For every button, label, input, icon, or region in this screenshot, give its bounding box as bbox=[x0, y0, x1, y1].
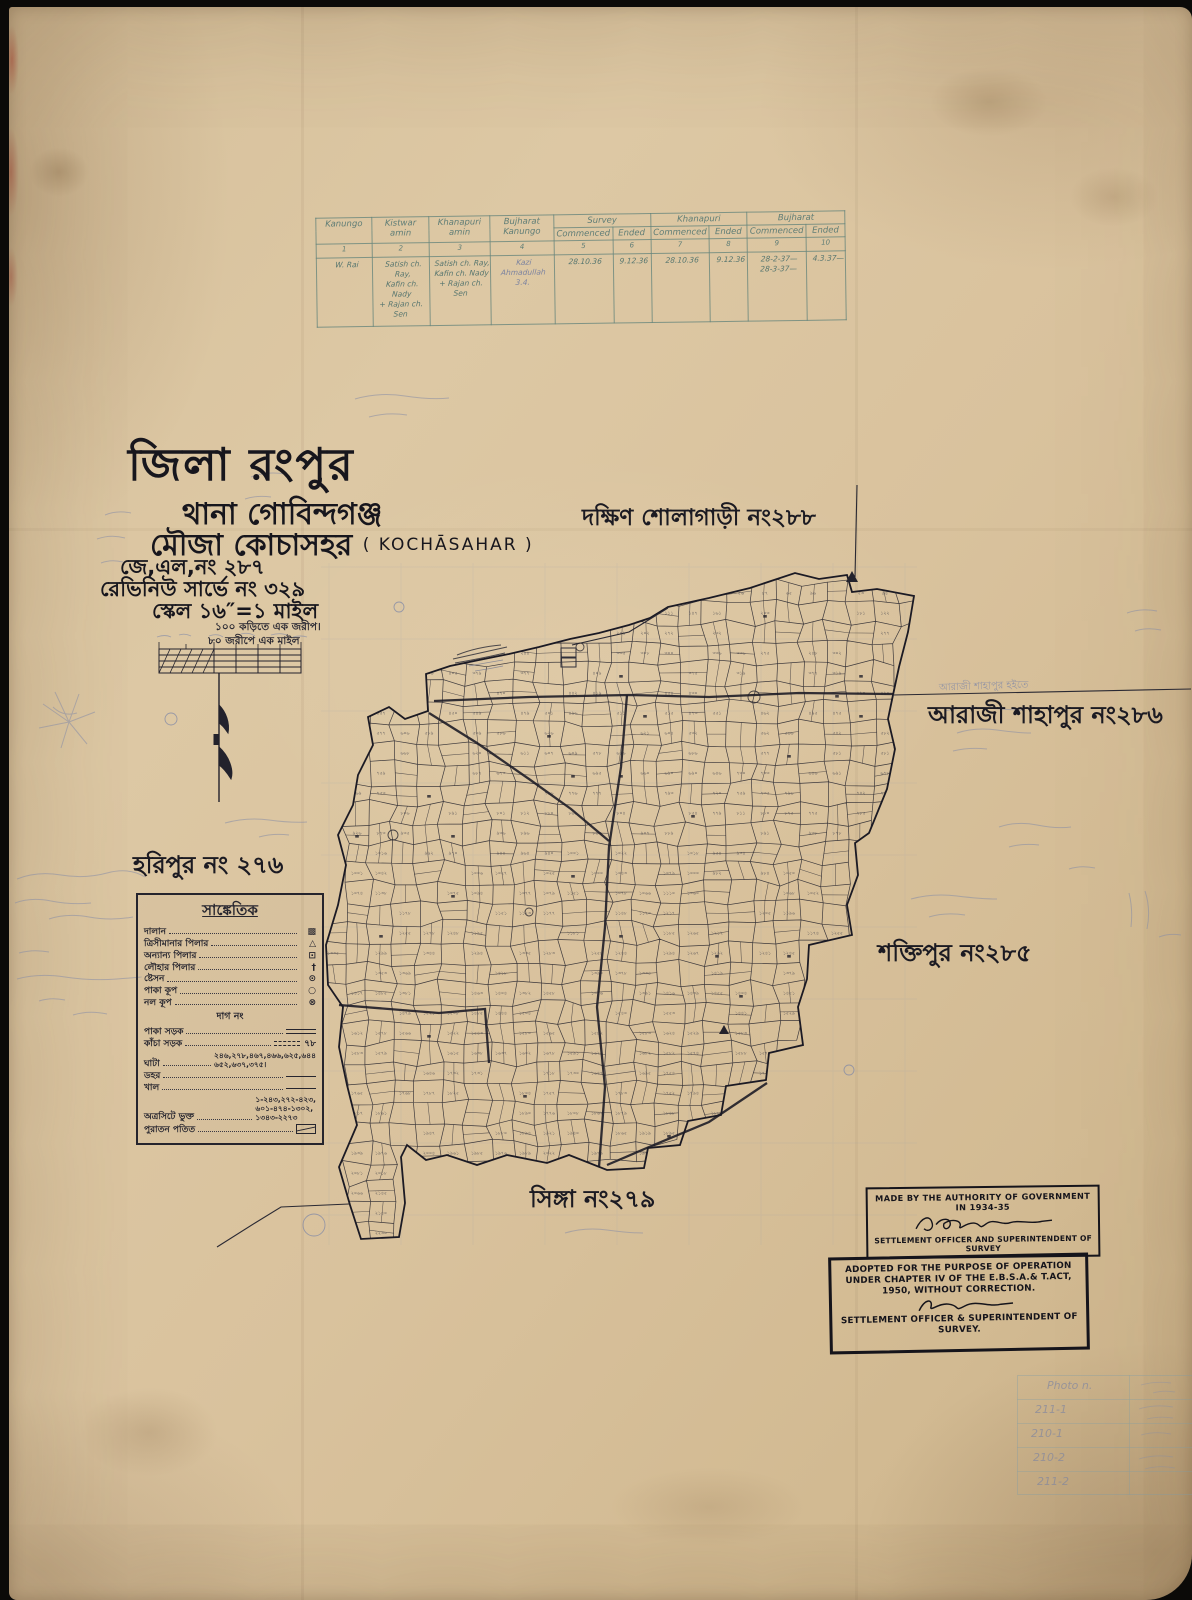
svg-text:৮১১: ৮১১ bbox=[737, 812, 746, 817]
svg-text:১৭৬৮: ১৭৬৮ bbox=[399, 1092, 412, 1097]
svg-text:১১৮১: ১১৮১ bbox=[567, 932, 579, 937]
svg-text:১২১২: ১২১২ bbox=[711, 932, 723, 937]
svg-text:৬৯১: ৬৯১ bbox=[833, 772, 842, 777]
svg-text:৬০৭: ৬০৭ bbox=[545, 752, 554, 757]
svg-text:১১৫১: ১১৫১ bbox=[567, 892, 579, 897]
svg-text:১০৬৮: ১০৬৮ bbox=[783, 892, 796, 897]
svg-text:১৩৩৫: ১৩৩৫ bbox=[519, 952, 531, 957]
legend-subtitle: দাগ নং bbox=[144, 1010, 316, 1025]
other-pillar-symbol: ⊡ bbox=[300, 951, 316, 961]
svg-text:৭৪২: ৭৪২ bbox=[857, 792, 866, 797]
svg-text:১০২৭: ১০২৭ bbox=[495, 872, 507, 877]
sub-header: Ended bbox=[709, 225, 747, 239]
svg-text:১২৯৪: ১২৯৪ bbox=[663, 952, 675, 957]
svg-text:১০০৬: ১০০৬ bbox=[471, 872, 484, 877]
svg-text:৮৯৬: ৮৯৬ bbox=[521, 832, 531, 837]
masonry-well-symbol: ○ bbox=[300, 986, 316, 996]
svg-text:৮৭৮: ৮৭৮ bbox=[833, 832, 843, 837]
svg-text:৬৪৬: ৬৪৬ bbox=[713, 772, 723, 777]
svg-text:১৮২৫: ১৮২৫ bbox=[447, 1092, 459, 1097]
svg-text:৭৮৫: ৭৮৫ bbox=[857, 812, 866, 817]
svg-text:১০৭৮: ১০৭৮ bbox=[615, 892, 628, 897]
svg-text:১৯৩৯: ১৯৩৯ bbox=[351, 1152, 363, 1157]
svg-text:৬৮৭: ৬৮৭ bbox=[473, 772, 482, 777]
entry-survey-ended: 9.12.36 bbox=[611, 253, 653, 323]
entry-khanapuri-commenced: 28.10.36 bbox=[649, 253, 711, 323]
svg-text:১১২০: ১১২০ bbox=[639, 912, 651, 917]
sub-header: Commenced bbox=[651, 226, 710, 240]
svg-text:১৬৭৮: ১৬৭৮ bbox=[543, 1052, 556, 1057]
svg-text:১২৯৪: ১২৯৪ bbox=[471, 952, 483, 957]
unpaved-road-number: ৭৮ bbox=[300, 1039, 316, 1049]
svg-text:১৭৫৭: ১৭৫৭ bbox=[543, 1092, 555, 1097]
survey-grid bbox=[321, 563, 917, 1245]
svg-text:১০০০: ১০০০ bbox=[687, 872, 699, 877]
svg-text:১৩৮২: ১৩৮২ bbox=[519, 992, 531, 997]
svg-text:৫৭৭: ৫৭৭ bbox=[761, 752, 770, 757]
svg-text:১৫০৪: ১৫০৪ bbox=[519, 1012, 531, 1017]
svg-text:২৩২: ২৩২ bbox=[713, 632, 722, 637]
svg-text:১৬৯৫: ১৬৯৫ bbox=[639, 1072, 651, 1077]
svg-text:১৮০৪: ১৮০৪ bbox=[519, 1092, 531, 1097]
svg-text:২৪৮: ২৪৮ bbox=[809, 652, 819, 657]
sub-header: Ended bbox=[612, 227, 650, 241]
svg-text:৪৯৬: ৪৯৬ bbox=[569, 712, 579, 717]
svg-text:১৫৯১: ১৫৯১ bbox=[567, 1052, 579, 1057]
svg-text:৫৫১: ৫৫১ bbox=[713, 712, 722, 717]
svg-text:১৭৮৩: ১৭৮৩ bbox=[615, 1092, 628, 1097]
photo-number: 211-1 bbox=[1035, 1403, 1067, 1416]
svg-text:১৪৫৫: ১৪৫৫ bbox=[711, 992, 723, 997]
legend-label: লৌহার পিলার bbox=[144, 963, 195, 973]
trijunction-pillar-symbol: △ bbox=[300, 939, 316, 949]
svg-text:১৭৩০: ১৭৩০ bbox=[567, 1072, 579, 1077]
svg-text:১৬১: ১৬১ bbox=[713, 612, 722, 617]
svg-text:৭৩৩: ৭৩৩ bbox=[761, 772, 771, 777]
col-number: 5 bbox=[554, 240, 613, 255]
svg-text:১১৪৮: ১১৪৮ bbox=[615, 912, 628, 917]
svg-text:১৭১৮: ১৭১৮ bbox=[543, 1072, 556, 1077]
svg-text:৩৭৭: ৩৭৭ bbox=[809, 672, 818, 677]
svg-text:১৮৮০: ১৮৮০ bbox=[495, 1132, 507, 1137]
svg-text:৬৯০: ৬৯০ bbox=[665, 772, 674, 777]
svg-text:৩৩৬: ৩৩৬ bbox=[737, 652, 747, 657]
svg-text:৮৭৩: ৮৭৩ bbox=[377, 832, 387, 837]
svg-text:১৫৮৩: ১৫৮৩ bbox=[639, 1032, 652, 1037]
svg-text:১৫৭৯: ১৫৭৯ bbox=[375, 1052, 387, 1057]
svg-text:১০৬৬: ১০৬৬ bbox=[639, 892, 652, 897]
svg-text:৬৬৮: ৬৬৮ bbox=[401, 752, 411, 757]
svg-text:১২২: ১২২ bbox=[881, 612, 890, 617]
entry-bujharat-kanungo: Kazi Ahmadullah 3.4. bbox=[489, 255, 557, 325]
neighbour-label-south: সিঙ্গা নং২৭৯ bbox=[530, 1181, 655, 1221]
svg-text:৬৭৩: ৬৭৩ bbox=[497, 772, 507, 777]
svg-text:১৫৮০: ১৫৮০ bbox=[519, 1032, 531, 1037]
svg-text:৯৭০: ৯৭০ bbox=[449, 852, 458, 857]
col-number: 8 bbox=[709, 238, 747, 253]
svg-text:১২৫৫: ১২৫৫ bbox=[831, 932, 843, 937]
svg-text:১৪১৮: ১৪১৮ bbox=[495, 972, 508, 977]
svg-text:১২৬৫: ১২৬৫ bbox=[687, 932, 699, 937]
svg-text:৩০০: ৩০০ bbox=[665, 652, 674, 657]
svg-text:৫৬২: ৫৬২ bbox=[761, 732, 770, 737]
legend-label: পুরাতন পতিত bbox=[144, 1125, 195, 1135]
svg-text:৬১১: ৬১১ bbox=[521, 752, 530, 757]
svg-text:১৯৪০: ১৯৪০ bbox=[567, 1132, 579, 1137]
col-number: 2 bbox=[372, 243, 429, 258]
svg-text:১৫২৯: ১৫২৯ bbox=[687, 1032, 699, 1037]
svg-text:১০০১: ১০০১ bbox=[351, 872, 363, 877]
svg-text:১৪৫১: ১৪৫১ bbox=[783, 992, 795, 997]
legend-title: সাঙ্কেতিক bbox=[144, 899, 316, 924]
svg-text:১১৯৫: ১১৯৫ bbox=[471, 932, 483, 937]
svg-text:২০৬৬: ২০৬৬ bbox=[351, 1192, 364, 1197]
svg-text:৮৭: ৮৭ bbox=[762, 592, 768, 597]
svg-text:১১৫১: ১১৫১ bbox=[495, 912, 507, 917]
svg-text:১৪৭৯: ১৪৭৯ bbox=[399, 1012, 411, 1017]
legend-label: ষ্টেসন bbox=[144, 974, 164, 984]
svg-text:১৫৬৫: ১৫৬৫ bbox=[543, 1032, 555, 1037]
svg-text:১৩৩৪: ১৩৩৪ bbox=[639, 972, 651, 977]
svg-text:১৭৩১: ১৭৩১ bbox=[471, 1072, 483, 1077]
svg-text:৪৫০: ৪৫০ bbox=[449, 712, 458, 717]
svg-text:৫৮১: ৫৮১ bbox=[833, 752, 842, 757]
photo-number: 210-2 bbox=[1033, 1451, 1065, 1464]
svg-text:৫৭৮: ৫৭৮ bbox=[593, 752, 603, 757]
col-header: Bujharat Kanungo bbox=[490, 215, 554, 242]
svg-text:১২৫৫: ১২৫৫ bbox=[399, 932, 411, 937]
svg-text:১১৭৭: ১১৭৭ bbox=[543, 912, 555, 917]
svg-text:১৭৯৪: ১৭৯৪ bbox=[687, 1092, 699, 1097]
svg-text:৯৩৮: ৯৩৮ bbox=[809, 832, 819, 837]
svg-text:৬৮৬: ৬৮৬ bbox=[689, 752, 699, 757]
survey-progress-table: Kanungo Kistwar amin Khanapuri amin Bujh… bbox=[315, 210, 846, 327]
svg-text:১১৭৪: ১১৭৪ bbox=[807, 932, 819, 937]
svg-text:১৪৬৩: ১৪৬৩ bbox=[471, 992, 484, 997]
svg-text:১৯৮৯: ১৯৮৯ bbox=[519, 1152, 531, 1157]
svg-text:১২৪১: ১২৪১ bbox=[759, 952, 771, 957]
svg-text:৩৩৬: ৩৩৬ bbox=[713, 652, 723, 657]
svg-text:৮৫৪: ৮৫৪ bbox=[689, 812, 698, 817]
svg-text:৭৩৫: ৭৩৫ bbox=[761, 792, 770, 797]
svg-text:৬২০: ৬২০ bbox=[473, 752, 482, 757]
sheet-included-plot-numbers: ১-২৪৩,২৭২-৪২৩, ৬০১-৪৭৪-১৩০২, ১৩৪৩-২২৭৩ bbox=[255, 1095, 316, 1123]
svg-text:২০১৮: ২০১৮ bbox=[375, 1172, 388, 1177]
svg-text:৭৭৯: ৭৭৯ bbox=[713, 812, 722, 817]
legend-label: অন্যান্য পিলার bbox=[144, 951, 196, 961]
svg-text:৯৮২: ৯৮২ bbox=[713, 872, 722, 877]
svg-text:১০৭৯: ১০৭৯ bbox=[543, 892, 555, 897]
signature bbox=[908, 1211, 1058, 1235]
svg-text:১১৮৫: ১১৮৫ bbox=[663, 932, 675, 937]
svg-text:১৮০৮: ১৮০৮ bbox=[567, 1112, 580, 1117]
svg-text:১০২৫: ১০২৫ bbox=[543, 872, 555, 877]
svg-text:১০৪৩: ১০৪৩ bbox=[615, 872, 628, 877]
svg-text:১২০৫: ১২০৫ bbox=[759, 912, 771, 917]
svg-text:১৫৫৩: ১৫৫৩ bbox=[663, 1012, 676, 1017]
svg-text:১০১৬: ১০১৬ bbox=[375, 852, 388, 857]
svg-text:১৪১৭: ১৪১৭ bbox=[351, 992, 363, 997]
svg-text:১৩৬৯: ১৩৬৯ bbox=[399, 972, 411, 977]
svg-text:১৫২৯: ১৫২৯ bbox=[783, 1012, 795, 1017]
svg-text:১৪৮৫: ১৪৮৫ bbox=[375, 992, 387, 997]
svg-text:৫৬৬: ৫৬৬ bbox=[785, 732, 795, 737]
svg-text:১৭৩২: ১৭৩২ bbox=[447, 1072, 459, 1077]
svg-text:৭২০: ৭২০ bbox=[713, 792, 722, 797]
svg-text:১০৭৭: ১০৭৭ bbox=[519, 892, 531, 897]
entry-kanungo: W. Rai bbox=[315, 257, 375, 327]
pencil-annotation-araji: আরাজী শাহাপুর হইতে bbox=[939, 677, 1029, 697]
svg-text:১২৪৮: ১২৪৮ bbox=[447, 932, 460, 937]
svg-text:৪৯৫: ৪৯৫ bbox=[809, 712, 818, 717]
svg-text:৫৩৯: ৫৩৯ bbox=[473, 732, 482, 737]
svg-text:১৩৪৪: ১৩৪৪ bbox=[423, 952, 435, 957]
svg-text:২০০৪: ২০০৪ bbox=[423, 1152, 435, 1157]
neighbour-label-north: দক্ষিণ শোলাগাড়ী নং২৮৮ bbox=[582, 499, 816, 538]
svg-text:৪৭০: ৪৭০ bbox=[497, 692, 506, 697]
svg-text:১৫৮৩: ১৫৮৩ bbox=[735, 1032, 748, 1037]
svg-text:৯৩৫: ৯৩৫ bbox=[401, 832, 410, 837]
svg-text:১০৬০: ১০৬০ bbox=[687, 892, 699, 897]
svg-text:৯২৬: ৯২৬ bbox=[353, 832, 363, 837]
svg-text:১৬৩৮: ১৬৩৮ bbox=[471, 1052, 484, 1057]
svg-text:৬২৬: ৬২৬ bbox=[545, 732, 555, 737]
svg-text:১২৮৩: ১২৮৩ bbox=[543, 952, 556, 957]
svg-text:১৫৮২: ১৫৮২ bbox=[591, 1032, 603, 1037]
scanned-map-sheet: { "title_block": { "district": "জিলা রংপ… bbox=[0, 0, 1192, 1600]
svg-text:২৭৭: ২৭৭ bbox=[881, 632, 890, 637]
svg-text:৪৬২: ৪৬২ bbox=[761, 712, 770, 717]
col-number: 6 bbox=[613, 240, 651, 255]
photo-number-table: Photo n. 211-1 210-1 210-2 211-2 bbox=[1017, 1375, 1192, 1495]
svg-text:১২৯২: ১২৯২ bbox=[711, 952, 723, 957]
col-number: 9 bbox=[747, 237, 806, 252]
svg-text:৬৫: ৬৫ bbox=[786, 592, 792, 597]
svg-text:১৪০৪: ১৪০৪ bbox=[495, 992, 507, 997]
svg-text:৬৯৫: ৬৯৫ bbox=[593, 772, 602, 777]
svg-text:৭৯৩: ৭৯৩ bbox=[665, 792, 675, 797]
sub-header: Ended bbox=[806, 224, 845, 238]
iron-pillar-symbol: † bbox=[300, 963, 316, 973]
svg-text:২৭২: ২৭২ bbox=[665, 632, 674, 637]
svg-text:৫৮১: ৫৮১ bbox=[881, 752, 890, 757]
svg-text:৮৯১: ৮৯১ bbox=[761, 832, 770, 837]
legend-label: ঘাটা bbox=[144, 1059, 160, 1069]
svg-text:৬০৪: ৬০৪ bbox=[665, 732, 674, 737]
svg-text:১৬৮২: ১৬৮২ bbox=[639, 1052, 651, 1057]
svg-text:১৯১৯: ১৯১৯ bbox=[639, 1132, 651, 1137]
svg-text:১৪৭: ১৪৭ bbox=[689, 612, 698, 617]
svg-text:৯৩৪: ৯৩৪ bbox=[737, 852, 746, 857]
legend-label: কাঁচা সড়ক bbox=[144, 1039, 182, 1049]
svg-text:১৫৭৮: ১৫৭৮ bbox=[375, 1032, 388, 1037]
dohor-symbol bbox=[286, 1075, 316, 1077]
svg-text:৯৪: ৯৪ bbox=[882, 592, 888, 597]
svg-text:৮১২: ৮১২ bbox=[521, 812, 530, 817]
svg-text:৩৭৫: ৩৭৫ bbox=[689, 672, 698, 677]
svg-text:১৬৪৭: ১৬৪৭ bbox=[591, 1072, 603, 1077]
svg-text:৪০৫: ৪০৫ bbox=[449, 672, 458, 677]
svg-text:৫৮৬: ৫৮৬ bbox=[497, 732, 507, 737]
building-symbol: ▩ bbox=[300, 927, 316, 937]
svg-text:২২৩০: ২২৩০ bbox=[375, 1232, 387, 1237]
svg-text:১২৭৮: ১২৭৮ bbox=[423, 932, 436, 937]
svg-text:৩০২: ৩০২ bbox=[833, 652, 842, 657]
svg-text:৮৮০: ৮৮০ bbox=[761, 812, 770, 817]
legend-label: দালান bbox=[144, 927, 166, 937]
svg-text:৬০৬: ৬০৬ bbox=[401, 732, 411, 737]
entry-bujharat-ended: 4.3.37— bbox=[805, 251, 848, 321]
legend-label: ত্রিসীমানার পিলার bbox=[144, 939, 208, 949]
svg-text:১৭৫৪: ১৭৫৪ bbox=[663, 1072, 675, 1077]
legend-label: নল কূপ bbox=[144, 998, 172, 1008]
svg-text:৪৭৯: ৪৭৯ bbox=[521, 712, 530, 717]
svg-text:১১৩৮: ১১৩৮ bbox=[375, 892, 388, 897]
svg-text:৫৪৯: ৫৪৯ bbox=[473, 712, 482, 717]
svg-text:৩০৮: ৩০৮ bbox=[641, 652, 651, 657]
authority-stamp: MADE BY THE AUTHORITY OF GOVERNMENT IN 1… bbox=[866, 1185, 1101, 1260]
mouza-name-latin: ( KOCHĀSAHAR ) bbox=[363, 535, 534, 555]
svg-text:১০২২: ১০২২ bbox=[615, 852, 627, 857]
group-header: Khanapuri bbox=[650, 212, 747, 226]
svg-text:১৫৪৩: ১৫৪৩ bbox=[471, 1032, 484, 1037]
svg-text:১৭৬৫: ১৭৬৫ bbox=[351, 1092, 363, 1097]
svg-text:১৮১: ১৮১ bbox=[857, 612, 866, 617]
svg-text:৭৭৭: ৭৭৭ bbox=[593, 792, 602, 797]
svg-text:২১৪৫: ২১৪৫ bbox=[375, 1192, 387, 1197]
svg-text:১৪১৬: ১৪১৬ bbox=[663, 992, 676, 997]
paved-road-symbol bbox=[286, 1029, 316, 1034]
svg-text:১১৭৮: ১১৭৮ bbox=[399, 912, 412, 917]
svg-text:৮০৬: ৮০৬ bbox=[401, 812, 411, 817]
svg-text:৫০১: ৫০১ bbox=[545, 712, 554, 717]
svg-text:১৩৭৯: ১৩৭৯ bbox=[783, 972, 795, 977]
neighbour-label-southeast: শক্তিপুর নং২৮৫ bbox=[878, 935, 1032, 975]
svg-text:৮৭৫: ৮৭৫ bbox=[785, 812, 794, 817]
svg-text:১০০১: ১০০১ bbox=[567, 852, 579, 857]
svg-text:১৫৮৮: ১৫৮৮ bbox=[735, 1052, 748, 1057]
svg-text:৫৮২: ৫৮২ bbox=[881, 732, 890, 737]
col-header: Kistwar amin bbox=[372, 217, 429, 244]
col-header: Khanapuri amin bbox=[429, 216, 490, 243]
col-header: Kanungo bbox=[316, 217, 372, 244]
entry-bujharat-commenced: 28-2-37— 28-3-37— bbox=[746, 251, 808, 321]
svg-text:৯৫৪: ৯৫৪ bbox=[713, 852, 722, 857]
svg-text:৯৬৪: ৯৬৪ bbox=[521, 852, 530, 857]
svg-text:৬২১: ৬২১ bbox=[641, 732, 650, 737]
svg-text:১২৪৪: ১২৪৪ bbox=[615, 952, 627, 957]
svg-text:৯৪৪: ৯৪৪ bbox=[497, 852, 506, 857]
svg-text:৫৪২: ৫৪২ bbox=[833, 732, 842, 737]
svg-text:১৯৩১: ১৯৩১ bbox=[639, 1152, 651, 1157]
svg-text:৬০৯: ৬০৯ bbox=[569, 752, 578, 757]
svg-text:৭৯৬: ৭৯৬ bbox=[785, 792, 795, 797]
svg-text:৩১৯: ৩১৯ bbox=[737, 672, 746, 677]
svg-text:৯৬: ৯৬ bbox=[810, 592, 817, 597]
svg-text:৭৫৯: ৭৫৯ bbox=[377, 772, 386, 777]
svg-text:১৩৭৮: ১৩৭৮ bbox=[615, 972, 628, 977]
svg-text:১৪৮৫: ১৪৮৫ bbox=[471, 1012, 483, 1017]
svg-text:১১১০: ১১১০ bbox=[663, 892, 675, 897]
svg-text:৬৬০: ৬৬০ bbox=[641, 772, 650, 777]
svg-text:৭৫৯: ৭৫৯ bbox=[737, 792, 746, 797]
svg-text:২৪৪: ২৪৪ bbox=[521, 652, 530, 657]
svg-text:১৮৪৮: ১৮৪৮ bbox=[663, 1112, 676, 1117]
svg-text:১৬১২: ১৬১২ bbox=[351, 1032, 363, 1037]
svg-text:৯৩৬: ৯৩৬ bbox=[497, 832, 507, 837]
entry-khanapuri-ended: 9.12.36 bbox=[708, 252, 750, 322]
svg-text:১০৯৪: ১০৯৪ bbox=[471, 892, 483, 897]
stamp-text: MADE BY THE AUTHORITY OF GOVERNMENT IN 1… bbox=[871, 1191, 1095, 1214]
svg-text:৪৭৫: ৪৭৫ bbox=[833, 712, 842, 717]
svg-text:৬৯০: ৬৯০ bbox=[689, 772, 698, 777]
entry-khanapuri-amin: Satish ch. Ray, Kafin ch. Nady + Rajan c… bbox=[428, 256, 493, 326]
svg-text:১৬২৪: ১৬২৪ bbox=[663, 1032, 675, 1037]
svg-text:৫৩: ৫৩ bbox=[858, 592, 865, 597]
svg-text:১০৭৯: ১০৭৯ bbox=[663, 872, 675, 877]
legend-label: খাল bbox=[144, 1083, 159, 1093]
north-arrow bbox=[214, 673, 232, 802]
ghata-plot-numbers: ২৪৬,২৭৮,৪৬৭,৪৬৬,৬২৫,৬৪৪ ৬৫২,৬৩৭,৩৭৫। bbox=[214, 1051, 316, 1070]
svg-text:১৭৭৬: ১৭৭৬ bbox=[543, 1112, 556, 1117]
svg-text:১৫৭৪: ১৫৭৪ bbox=[687, 1052, 699, 1057]
svg-text:২০৮১: ২০৮১ bbox=[351, 1172, 363, 1177]
svg-text:১৮১৭: ১৮১৭ bbox=[351, 1112, 363, 1117]
svg-text:৮৮৯: ৮৮৯ bbox=[665, 832, 674, 837]
legend-label: পাকা সড়ক bbox=[144, 1027, 183, 1037]
unpaved-road-symbol bbox=[274, 1041, 300, 1046]
col-number: 3 bbox=[429, 242, 490, 257]
svg-text:১২৬৭: ১২৬৭ bbox=[687, 952, 699, 957]
svg-text:৫৩২: ৫৩২ bbox=[689, 732, 698, 737]
photo-table-header: Photo n. bbox=[1047, 1379, 1092, 1392]
svg-text:১৩৮১: ১৩৮১ bbox=[399, 992, 411, 997]
svg-text:১৯৭৬: ১৯৭৬ bbox=[375, 1152, 388, 1157]
svg-text:১১১: ১১১ bbox=[665, 612, 674, 617]
svg-text:৫১৫: ৫১৫ bbox=[665, 712, 674, 717]
photo-number: 210-1 bbox=[1031, 1427, 1063, 1440]
svg-text:১৫২২: ১৫২২ bbox=[447, 1032, 459, 1037]
svg-text:১০০০: ১০০০ bbox=[591, 872, 603, 877]
neighbour-label-east: আরাজী শাহাপুর নং২৮৬ bbox=[928, 697, 1163, 737]
col-number: 7 bbox=[651, 239, 710, 254]
col-number: 1 bbox=[316, 243, 372, 258]
svg-text:২০৩: ২০৩ bbox=[761, 612, 771, 617]
svg-text:১৫৪০: ১৫৪০ bbox=[615, 1012, 627, 1017]
svg-text:১৭২২: ১৭২২ bbox=[759, 1072, 771, 1077]
svg-text:৯০৭: ৯০৭ bbox=[641, 832, 650, 837]
svg-text:১২৯৯: ১২৯৯ bbox=[375, 952, 387, 957]
svg-text:১৫৮২: ১৫৮২ bbox=[663, 1052, 675, 1057]
svg-text:১৩৯১: ১৩৯১ bbox=[639, 992, 651, 997]
svg-text:১৪০৪: ১৪০৪ bbox=[735, 992, 747, 997]
svg-text:৭৭৫: ৭৭৫ bbox=[809, 812, 818, 817]
svg-text:৫৮৯: ৫৮৯ bbox=[425, 732, 434, 737]
col-number: 10 bbox=[806, 237, 845, 252]
svg-text:২০২২: ২০২২ bbox=[543, 1152, 555, 1157]
adopted-stamp: ADOPTED FOR THE PURPOSE OF OPERATION UND… bbox=[828, 1253, 1090, 1355]
svg-text:১৫৮৩: ১৫৮৩ bbox=[351, 1052, 364, 1057]
svg-text:১৩৩৫: ১৩৩৫ bbox=[327, 952, 339, 957]
legend-box: সাঙ্কেতিক দালান▩ ত্রিসীমানার পিলার△ অন্য… bbox=[136, 893, 324, 1145]
svg-text:১৮৭৯: ১৮৭৯ bbox=[615, 1112, 627, 1117]
svg-text:৯৪০: ৯৪০ bbox=[545, 852, 554, 857]
svg-text:১৫৬৬: ১৫৬৬ bbox=[399, 1032, 412, 1037]
legend-label: পাকা কূপ bbox=[144, 986, 177, 996]
scale-note-2: ৮০ জরীপে এক মাইল bbox=[208, 634, 300, 651]
legend-label: ডহর bbox=[144, 1071, 160, 1081]
svg-text:৯৯২: ৯৯২ bbox=[425, 852, 434, 857]
